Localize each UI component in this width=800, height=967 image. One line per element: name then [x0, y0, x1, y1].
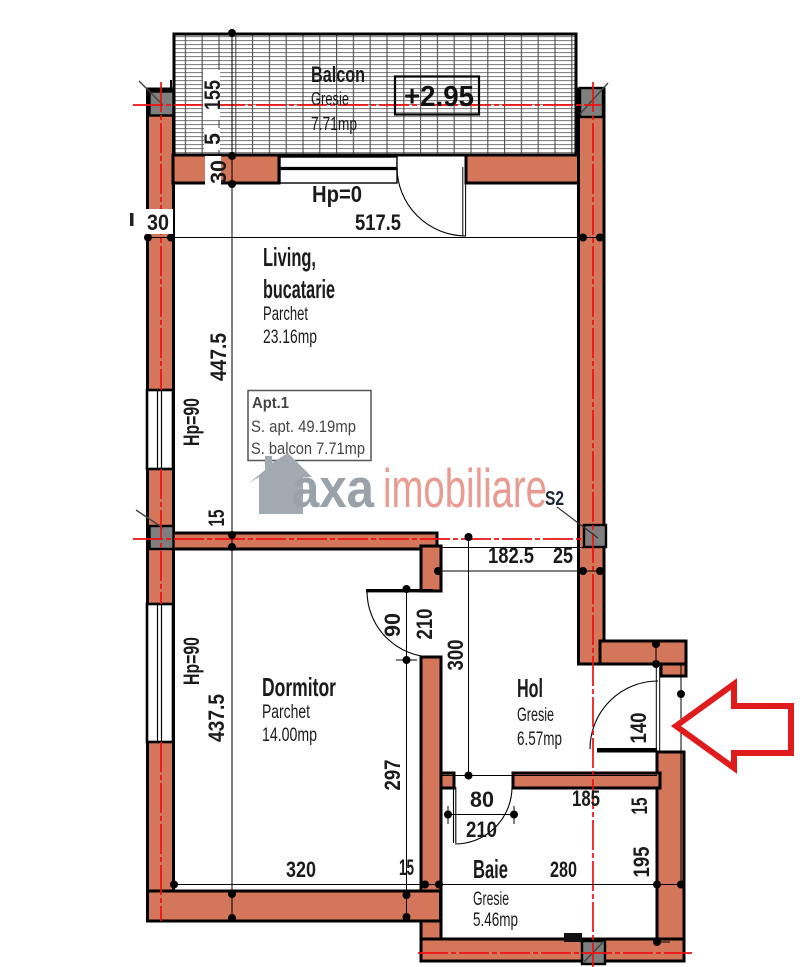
svg-text:14.00mp: 14.00mp: [262, 725, 317, 746]
svg-text:Hp=0: Hp=0: [312, 181, 362, 207]
svg-text:Living,: Living,: [263, 242, 316, 272]
svg-text:210: 210: [466, 817, 497, 842]
svg-text:195: 195: [629, 847, 654, 878]
svg-text:Gresie: Gresie: [517, 705, 554, 726]
svg-text:140: 140: [626, 713, 651, 744]
svg-text:155: 155: [200, 80, 225, 110]
svg-text:185: 185: [572, 786, 600, 811]
svg-text:Dormitor: Dormitor: [262, 672, 336, 702]
svg-text:imobiliare: imobiliare: [383, 457, 547, 519]
svg-text:+2.95: +2.95: [404, 81, 474, 113]
svg-text:Gresie: Gresie: [473, 889, 509, 910]
svg-text:280: 280: [550, 857, 577, 882]
svg-text:437.5: 437.5: [204, 694, 229, 742]
svg-text:80: 80: [470, 787, 494, 812]
svg-text:210: 210: [412, 609, 437, 640]
svg-text:15: 15: [204, 510, 229, 527]
svg-text:Hp=90: Hp=90: [179, 398, 204, 446]
svg-text:90: 90: [380, 613, 405, 637]
svg-text:6.57mp: 6.57mp: [517, 729, 562, 750]
svg-text:300: 300: [443, 640, 468, 671]
svg-text:447.5: 447.5: [206, 333, 231, 381]
svg-text:Parchet: Parchet: [262, 702, 311, 723]
svg-text:S. apt. 49.19mp: S. apt. 49.19mp: [251, 417, 356, 436]
svg-text:Apt.1: Apt.1: [252, 395, 289, 412]
svg-text:5.46mp: 5.46mp: [473, 910, 518, 931]
svg-text:Balcon: Balcon: [311, 62, 365, 87]
svg-text:Hol: Hol: [517, 673, 543, 703]
svg-text:S2: S2: [545, 488, 564, 510]
svg-text:bucatarie: bucatarie: [263, 274, 335, 304]
svg-text:15: 15: [399, 855, 414, 880]
svg-text:25: 25: [553, 543, 573, 568]
svg-text:axa: axa: [292, 457, 374, 519]
svg-text:Baie: Baie: [473, 854, 508, 884]
svg-text:297: 297: [380, 760, 405, 791]
svg-text:S. balcon 7.71mp: S. balcon 7.71mp: [251, 439, 365, 458]
svg-text:Gresie: Gresie: [311, 89, 349, 109]
svg-text:15: 15: [627, 798, 652, 815]
svg-text:Hp=90: Hp=90: [179, 637, 204, 685]
svg-text:30: 30: [147, 210, 169, 235]
svg-text:30: 30: [206, 160, 231, 184]
svg-text:5: 5: [200, 133, 225, 145]
svg-text:517.5: 517.5: [355, 210, 401, 235]
svg-text:7.71mp: 7.71mp: [311, 114, 357, 134]
svg-text:Parchet: Parchet: [263, 304, 308, 325]
svg-text:182.5: 182.5: [488, 543, 534, 568]
svg-text:23.16mp: 23.16mp: [263, 327, 317, 348]
svg-text:320: 320: [286, 857, 316, 882]
